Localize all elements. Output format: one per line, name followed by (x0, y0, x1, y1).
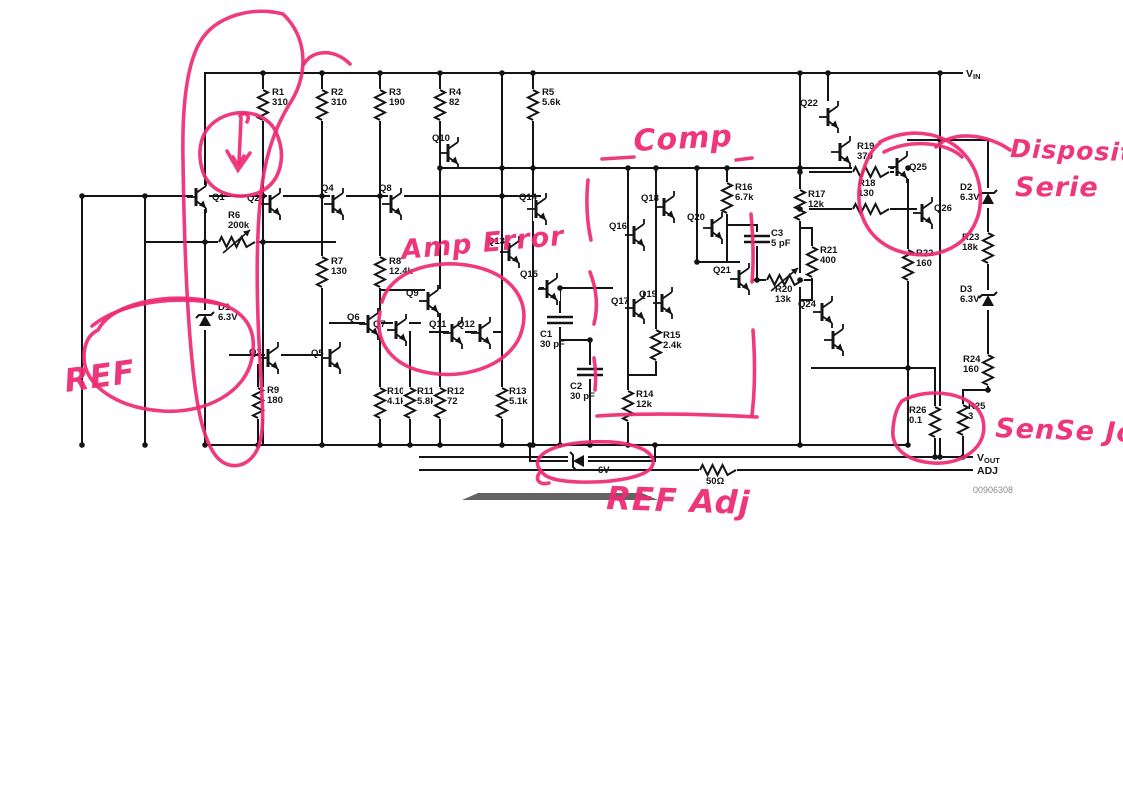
resistor-R21: R21400 (805, 245, 838, 278)
transistor-pair (831, 136, 853, 168)
svg-text:6V: 6V (598, 465, 610, 476)
transistor-Q21: Q21 (713, 263, 752, 295)
svg-text:Q4: Q4 (321, 183, 334, 194)
annotation-stroke-comp-dash-left (602, 157, 634, 159)
svg-text:Q21: Q21 (713, 265, 732, 276)
resistor-R3: R3190 (373, 87, 405, 121)
figure-number-text: 00906308 (973, 485, 1013, 495)
svg-text:Q20: Q20 (687, 212, 705, 223)
annotation-text-amp-error: Amp Error (398, 221, 566, 266)
svg-text:160: 160 (963, 364, 979, 375)
capacitor-C3: C35 pF (743, 228, 791, 249)
annotation-stroke-comp-bracket-l2 (590, 272, 596, 324)
svg-text:Q14: Q14 (519, 192, 538, 203)
annotation-text-dispositivo: Dispositivo (1010, 134, 1123, 169)
port-vin: VIN (966, 68, 981, 81)
svg-text:130: 130 (331, 266, 347, 277)
transistor-Q20: Q20 (687, 212, 725, 244)
resistor-R24: R24160 (963, 354, 995, 386)
svg-text:Q6: Q6 (347, 312, 360, 323)
resistor-R17: R1712k (793, 189, 825, 221)
capacitor-C2: C230 pF (570, 365, 604, 402)
transistor-Q24: Q24 (798, 296, 835, 328)
svg-text:Q10: Q10 (432, 133, 450, 144)
svg-text:310: 310 (272, 97, 288, 108)
svg-text:Q11: Q11 (429, 319, 447, 330)
annotation-text-serie: Serie (1015, 172, 1099, 203)
transistor-Q8: Q8 (379, 183, 404, 220)
transistor-Q14: Q14 (519, 192, 549, 225)
svg-text:180: 180 (267, 395, 283, 406)
svg-text:3: 3 (968, 411, 973, 422)
zener-D1: D16.3V (196, 302, 238, 330)
resistor-R19: R19370 (852, 141, 890, 179)
resistor-R10: R104.1k (373, 386, 406, 419)
annotation-stroke-comp-bracket-l3 (594, 358, 596, 390)
transistor-Q26: Q26 (913, 197, 952, 229)
svg-text:Q24: Q24 (798, 299, 817, 310)
svg-text:13k: 13k (775, 294, 792, 305)
transistor-Q22: Q22 (800, 98, 841, 133)
annotation-stroke-comp-bracket-r2 (752, 330, 754, 415)
svg-text:30 pF: 30 pF (540, 339, 565, 350)
port-vout: VOUT (977, 452, 1000, 465)
svg-text:5 pF: 5 pF (771, 238, 791, 249)
annotation-text-ref: REF (62, 352, 138, 400)
transistor-Q1: Q1 (187, 181, 225, 213)
transistor-pair (824, 324, 846, 356)
svg-text:12k: 12k (636, 399, 653, 410)
figure-number: 00906308 (973, 485, 1013, 495)
svg-text:82: 82 (449, 97, 460, 108)
resistor-R4: R482 (433, 87, 462, 121)
zener-ref-adj: 6V (568, 452, 610, 476)
transistor-Q18: Q18 (641, 191, 677, 223)
zener-D3: D36.3V (960, 284, 997, 310)
svg-text:6.3V: 6.3V (960, 192, 980, 203)
svg-text:6.3V: 6.3V (960, 294, 980, 305)
annotation-stroke-loop-top-hook (304, 53, 350, 64)
scanned-schematic-page: R1310R2310R3190R482R55.6kR6200kR7130R812… (0, 0, 1123, 793)
resistor-R15: R152.4k (649, 329, 682, 361)
resistor-R13: R135.1k (495, 386, 528, 419)
svg-text:Q16: Q16 (609, 221, 627, 232)
annotation-text-ref-adj: REF Adj (606, 479, 751, 522)
svg-text:160: 160 (916, 258, 932, 269)
resistor-R6: R6200k (218, 210, 256, 253)
svg-text:Q8: Q8 (379, 183, 392, 194)
annotation-stroke-comp-bracket-l1 (587, 180, 591, 240)
svg-text:200k: 200k (228, 220, 250, 231)
svg-text:Q12: Q12 (457, 319, 475, 330)
transistor-Q2: Q2 (247, 188, 283, 220)
annotation-stroke-comp-dash-right (736, 158, 752, 160)
svg-text:12k: 12k (808, 199, 825, 210)
svg-text:5.1k: 5.1k (509, 396, 528, 407)
svg-text:400: 400 (820, 255, 836, 266)
resistor-R11: R115.8k (403, 386, 436, 419)
annotation-text-comp: Comp (633, 119, 734, 159)
svg-text:2.4k: 2.4k (663, 340, 682, 351)
svg-text:Q18: Q18 (641, 193, 659, 204)
svg-text:30 pF: 30 pF (570, 391, 595, 402)
resistor-R2: R2310 (315, 87, 347, 121)
resistor-R9: R9180 (251, 385, 283, 419)
svg-text:Q5: Q5 (311, 348, 324, 359)
transistor-Q4: Q4 (321, 183, 346, 220)
transistor-Q5: Q5 (311, 342, 343, 374)
svg-text:Q25: Q25 (909, 162, 928, 173)
svg-text:72: 72 (447, 396, 458, 407)
svg-text:Q17: Q17 (611, 296, 629, 307)
resistor-R26: R260.1 (909, 405, 942, 438)
annotation-stroke-comp-bracket-r1 (751, 214, 753, 282)
resistor-R7: R7130 (315, 256, 347, 288)
resistor-R12: R1272 (433, 386, 464, 419)
svg-text:6.3V: 6.3V (218, 312, 238, 323)
transistor-Q10: Q10 (432, 133, 461, 169)
capacitor-C1: C130 pF (540, 313, 574, 350)
svg-text:Q15: Q15 (520, 269, 539, 280)
svg-text:0.1: 0.1 (909, 415, 923, 426)
svg-text:6.7k: 6.7k (735, 192, 754, 203)
svg-text:Q22: Q22 (800, 98, 818, 109)
svg-text:5.6k: 5.6k (542, 97, 561, 108)
svg-text:190: 190 (389, 97, 405, 108)
lm117-internal-schematic: R1310R2310R3190R482R55.6kR6200kR7130R812… (0, 0, 1123, 793)
svg-text:Q9: Q9 (406, 288, 419, 299)
svg-text:Q26: Q26 (934, 203, 952, 214)
svg-text:310: 310 (331, 97, 347, 108)
resistor-R16: R166.7k (720, 182, 754, 214)
svg-text:Q19: Q19 (639, 289, 657, 300)
resistor-R5: R55.6k (526, 87, 561, 121)
annotation-text-sense-jo: SenSe Jo (995, 413, 1123, 449)
resistor-R14: R1412k (621, 389, 654, 422)
svg-text:18k: 18k (962, 242, 979, 253)
port-adj: ADJ (977, 465, 998, 477)
